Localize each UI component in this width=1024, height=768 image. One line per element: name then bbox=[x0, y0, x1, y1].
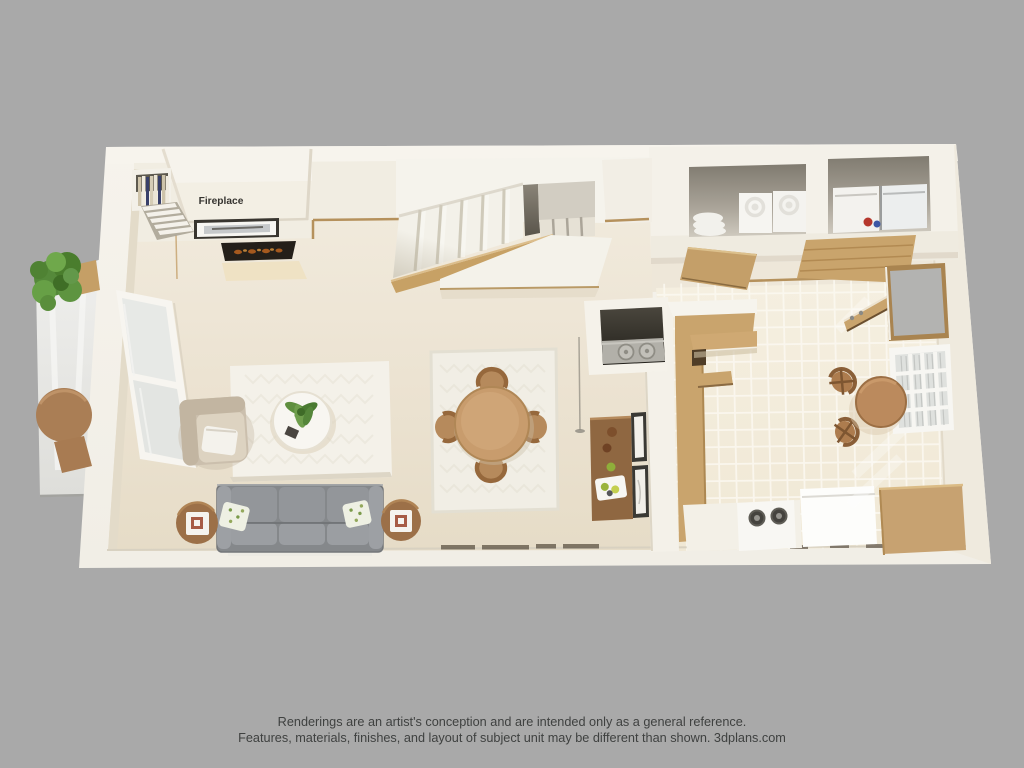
svg-text:Fireplace: Fireplace bbox=[199, 196, 244, 207]
